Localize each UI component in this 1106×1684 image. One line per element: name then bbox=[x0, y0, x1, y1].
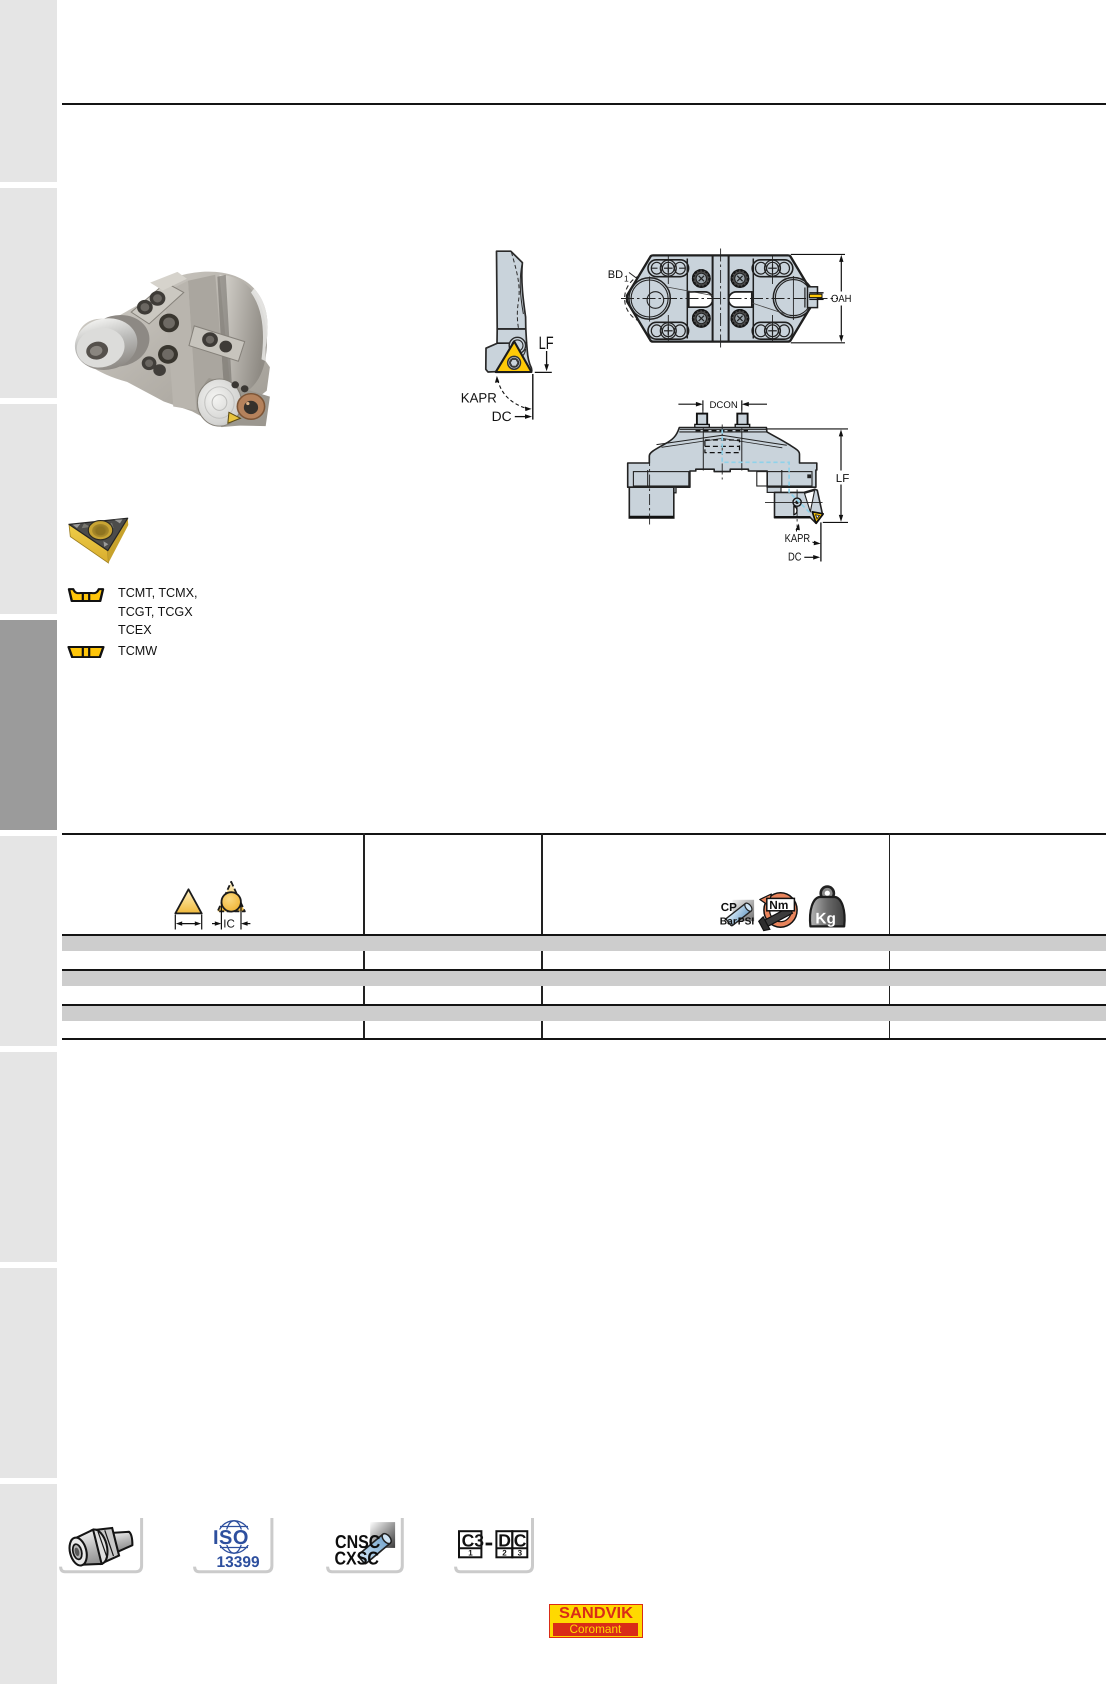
svg-text:1: 1 bbox=[624, 273, 629, 283]
svg-text:CP: CP bbox=[721, 901, 737, 914]
svg-text:DC: DC bbox=[788, 552, 802, 564]
svg-text:C3: C3 bbox=[462, 1530, 485, 1550]
svg-text:ISO: ISO bbox=[213, 1527, 249, 1549]
svg-text:DC: DC bbox=[492, 409, 512, 424]
svg-text:LF: LF bbox=[836, 473, 850, 485]
svg-text:KAPR: KAPR bbox=[461, 390, 497, 405]
svg-text:2: 2 bbox=[502, 1549, 507, 1558]
svg-text:DCON: DCON bbox=[710, 400, 738, 411]
svg-text:1: 1 bbox=[468, 1549, 473, 1558]
svg-text:Kg: Kg bbox=[815, 910, 836, 927]
svg-text:Nm: Nm bbox=[769, 898, 788, 912]
svg-text:PSI: PSI bbox=[738, 917, 755, 928]
svg-text:C: C bbox=[514, 1530, 527, 1550]
svg-text:LF: LF bbox=[539, 333, 554, 353]
svg-text:CXSC: CXSC bbox=[335, 1548, 379, 1569]
svg-text:Bar: Bar bbox=[720, 917, 737, 928]
svg-text:KAPR: KAPR bbox=[785, 533, 811, 545]
svg-text:OAH: OAH bbox=[831, 294, 852, 305]
svg-text:D: D bbox=[498, 1530, 511, 1550]
svg-text:3: 3 bbox=[518, 1549, 523, 1558]
svg-text:IC: IC bbox=[223, 917, 235, 930]
svg-text:BD: BD bbox=[608, 269, 623, 281]
svg-text:13399: 13399 bbox=[217, 1554, 260, 1571]
